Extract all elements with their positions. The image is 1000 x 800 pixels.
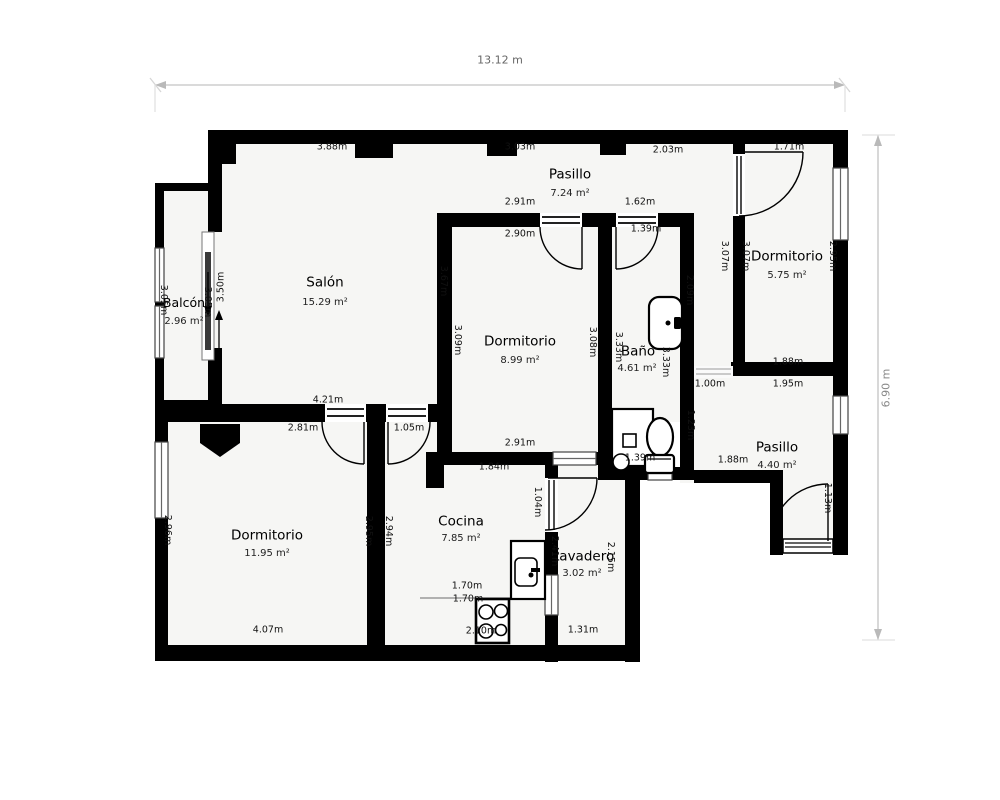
- room-area-balcon: 2.96 m²: [164, 317, 203, 327]
- window: [833, 168, 848, 240]
- wall: [625, 465, 640, 662]
- wall: [155, 422, 168, 444]
- floor-plan-drawing: [0, 0, 1000, 800]
- measurement-label: 1.00m: [695, 379, 725, 389]
- wall: [155, 404, 325, 422]
- room-label-bano: Baño: [621, 345, 655, 359]
- room-area-pasillo-right: 4.40 m²: [757, 461, 796, 471]
- stove: [476, 599, 509, 643]
- measurement-label: 1.04m: [532, 487, 542, 517]
- room-label-salon: Salón: [306, 276, 343, 290]
- door-frame: [545, 478, 558, 532]
- measurement-label: 2.96m: [162, 515, 172, 545]
- measurement-label: 1.13m: [822, 483, 832, 513]
- door-frame: [386, 404, 428, 422]
- wall: [155, 645, 640, 661]
- wall: [733, 216, 745, 366]
- measurement-label: 3.08m: [587, 327, 597, 357]
- window: [553, 452, 596, 465]
- entry-threshold: [783, 539, 833, 553]
- bathroom-sink: [649, 297, 682, 349]
- measurement-label: 4.07m: [253, 625, 283, 635]
- measurement-label: 1.62m: [625, 197, 655, 207]
- room-label-dormitorio-bl: Dormitorio: [231, 529, 303, 543]
- measurement-label: 3.03m: [505, 142, 535, 152]
- room-label-pasillo-top: Pasillo: [549, 168, 591, 182]
- door-frame: [325, 404, 366, 422]
- wall: [208, 144, 222, 232]
- floor-plan: 13.12 m 6.90 m Salón 15.29 m² Balcón 2.9…: [0, 0, 1000, 800]
- measurement-label: 1.70m: [452, 581, 482, 591]
- room-label-pasillo-right: Pasillo: [756, 441, 798, 455]
- measurement-label: 3.07m: [740, 241, 750, 271]
- measurement-label: 3.88m: [317, 142, 347, 152]
- room-area-cocina: 7.85 m²: [441, 534, 480, 544]
- measurement-label: 1.95m: [773, 379, 803, 389]
- wall-pillar: [355, 130, 393, 158]
- window: [155, 442, 168, 518]
- measurement-label: 3.09m: [452, 325, 462, 355]
- room-area-dormitorio-tr: 5.75 m²: [767, 271, 806, 281]
- measurement-label: 2.15m: [605, 542, 615, 572]
- wall: [770, 470, 783, 555]
- room-area-dormitorio-mid: 8.99 m²: [500, 356, 539, 366]
- wall: [426, 452, 444, 488]
- room-area-pasillo-top: 7.24 m²: [550, 189, 589, 199]
- wall: [366, 404, 386, 422]
- door-frame: [733, 154, 745, 216]
- measurement-label: 2.10m: [466, 626, 496, 636]
- arrow-down-icon: [874, 629, 882, 640]
- window: [545, 575, 558, 615]
- wall: [582, 213, 616, 227]
- measurement-label: 1.88m: [718, 455, 748, 465]
- measurement-label: 1.05m: [394, 423, 424, 433]
- measurement-label: 2.95m: [827, 241, 837, 271]
- room-area-lavadero: 3.02 m²: [562, 569, 601, 579]
- passage-sill: [694, 366, 733, 378]
- measurement-label: 3.33m: [613, 332, 623, 362]
- room-label-cocina: Cocina: [438, 515, 484, 529]
- wall: [694, 470, 782, 483]
- wall: [437, 213, 452, 465]
- room-area-dormitorio-bl: 11.95 m²: [244, 549, 290, 559]
- room-area-bano: 4.61 m²: [617, 364, 656, 374]
- measurement-label: 3.05m: [158, 285, 168, 315]
- measurement-label: 1.84m: [479, 462, 509, 472]
- wall: [833, 130, 848, 170]
- measurement-label: 1.88m: [773, 357, 803, 367]
- measurement-label: 3.33m: [660, 347, 670, 377]
- measurement-label: 1.31m: [568, 625, 598, 635]
- measurement-label: 2.91m: [505, 438, 535, 448]
- measurement-label: 3.05m: [202, 287, 212, 317]
- measurement-label: 3.50m: [216, 272, 226, 302]
- measurement-label: 1.71m: [774, 142, 804, 152]
- room-label-dormitorio-mid: Dormitorio: [484, 335, 556, 349]
- room-label-dormitorio-tr: Dormitorio: [751, 250, 823, 264]
- wall: [833, 434, 848, 555]
- wall: [598, 227, 612, 480]
- measurement-label: 2.91m: [505, 197, 535, 207]
- overall-height-label: 6.90 m: [880, 369, 893, 408]
- window: [833, 396, 848, 434]
- door-frame: [540, 213, 582, 227]
- measurement-label: 2.90m: [505, 229, 535, 239]
- measurement-label: 4.21m: [313, 395, 343, 405]
- measurement-label: 2.81m: [288, 423, 318, 433]
- overall-width-label: 13.12 m: [477, 54, 523, 67]
- measurement-label: 2.95m: [363, 516, 373, 546]
- arrow-left-icon: [155, 81, 166, 89]
- room-area-salon: 15.29 m²: [302, 298, 348, 308]
- measurement-label: 1.39m: [625, 453, 655, 463]
- measurement-label: 1.39m: [631, 224, 661, 234]
- arrow-right-icon: [834, 81, 845, 89]
- wall: [672, 467, 694, 480]
- measurement-label: 3.07m: [719, 241, 729, 271]
- room-label-balcon: Balcón: [163, 297, 205, 310]
- arrow-up-icon: [874, 135, 882, 146]
- wall-pillar: [600, 142, 626, 155]
- measurement-label: 2.41m: [549, 536, 559, 566]
- measurement-label: 2.09m: [684, 275, 694, 305]
- measurement-label: 3.67m: [438, 266, 448, 296]
- toilet: [645, 418, 674, 473]
- measurement-label: 1.23m: [685, 410, 695, 440]
- wall: [437, 213, 540, 227]
- measurement-label: 2.94m: [383, 516, 393, 546]
- measurement-label: 2.03m: [653, 145, 683, 155]
- measurement-label: 1.70m: [453, 594, 483, 604]
- wall: [155, 183, 208, 191]
